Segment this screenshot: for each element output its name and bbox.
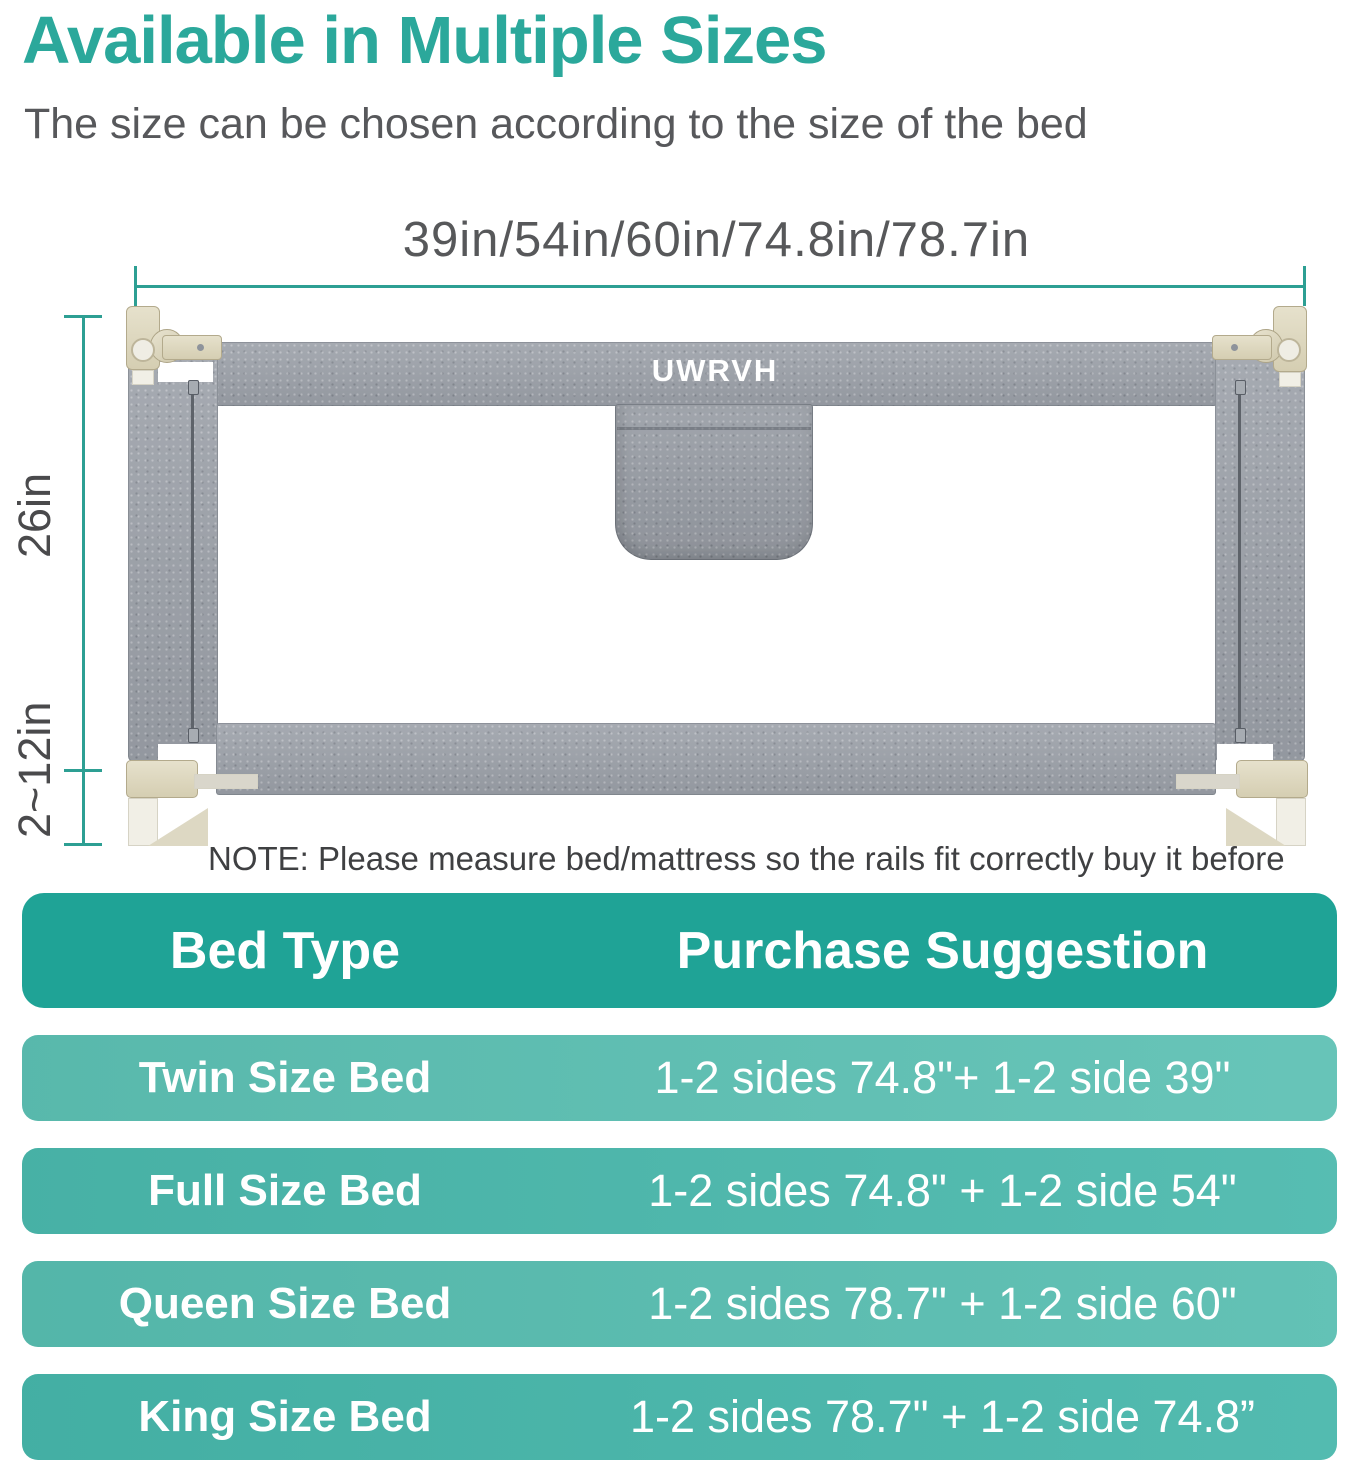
table-row-queen: Queen Size Bed 1-2 sides 78.7" + 1-2 sid… <box>22 1261 1337 1347</box>
width-dimension-tick-right <box>1303 266 1306 306</box>
height-dimension-line <box>82 316 85 846</box>
clamp-top-left-knob <box>131 338 155 362</box>
storage-pocket <box>615 404 813 560</box>
suggestion-cell: 1-2 sides 74.8" + 1-2 side 54" <box>548 1165 1337 1217</box>
suggestion-cell: 1-2 sides 78.7" + 1-2 side 74.8” <box>548 1391 1337 1443</box>
width-dimension-tick-left <box>134 266 137 306</box>
suggestion-cell: 1-2 sides 78.7" + 1-2 side 60" <box>548 1278 1337 1330</box>
page-title: Available in Multiple Sizes <box>22 2 827 79</box>
rail-right-panel <box>1215 348 1305 762</box>
clamp-top-left-arm <box>162 335 222 360</box>
clamp-top-left-pin <box>197 344 204 351</box>
height-dimension-tick-bottom <box>64 843 102 846</box>
rail-bottom-bar <box>216 723 1216 795</box>
leg-bottom-right <box>1276 798 1306 846</box>
width-dimension-label: 39in/54in/60in/74.8in/78.7in <box>110 212 1323 268</box>
size-table: Bed Type Purchase Suggestion Twin Size B… <box>22 893 1337 1460</box>
clamp-top-right-arm <box>1212 335 1272 360</box>
bed-type-cell: Queen Size Bed <box>22 1279 548 1329</box>
rail-left-panel <box>128 352 218 762</box>
table-row-king: King Size Bed 1-2 sides 78.7" + 1-2 side… <box>22 1374 1337 1460</box>
height-dimension-tick-middle <box>64 769 102 772</box>
page-subtitle: The size can be chosen according to the … <box>24 100 1088 149</box>
clamp-top-right-pin <box>1231 344 1238 351</box>
clamp-top-left-slider <box>132 370 154 385</box>
left-zipper-pull-top <box>188 380 199 395</box>
column-header-bed-type: Bed Type <box>22 921 548 981</box>
clamp-top-right-knob <box>1277 338 1301 362</box>
infographic-page: Available in Multiple Sizes The size can… <box>0 0 1353 1468</box>
clamp-bottom-left <box>126 760 198 798</box>
bed-type-cell: King Size Bed <box>22 1392 548 1442</box>
right-zipper-pull-top <box>1235 380 1246 395</box>
right-zipper-pull-bottom <box>1235 728 1246 743</box>
bed-type-cell: Twin Size Bed <box>22 1053 548 1103</box>
suggestion-cell: 1-2 sides 74.8"+ 1-2 side 39" <box>548 1052 1337 1104</box>
bed-type-cell: Full Size Bed <box>22 1166 548 1216</box>
pocket-seam <box>617 427 811 430</box>
clamp-top-right-slider <box>1279 372 1301 387</box>
table-row-full: Full Size Bed 1-2 sides 74.8" + 1-2 side… <box>22 1148 1337 1234</box>
clamp-bottom-right <box>1236 760 1308 798</box>
left-zipper-pull-bottom <box>188 728 199 743</box>
right-zipper <box>1238 382 1241 740</box>
left-zipper <box>191 382 194 740</box>
rail-height-label: 26in <box>6 430 64 600</box>
height-dimension-tick-top <box>64 315 102 318</box>
width-dimension-line <box>136 285 1306 288</box>
brand-logo: UWRVH <box>214 353 1216 389</box>
column-header-purchase-suggestion: Purchase Suggestion <box>548 921 1337 981</box>
mattress-gap-label: 2~12in <box>6 680 64 860</box>
table-row-twin: Twin Size Bed 1-2 sides 74.8"+ 1-2 side … <box>22 1035 1337 1121</box>
rod-bottom-left <box>194 774 258 789</box>
rail-top-left-gap <box>158 362 213 382</box>
measure-note: NOTE: Please measure bed/mattress so the… <box>208 840 1285 878</box>
table-header-row: Bed Type Purchase Suggestion <box>22 893 1337 1008</box>
leg-bottom-left <box>128 798 158 846</box>
rod-bottom-right <box>1176 774 1240 789</box>
